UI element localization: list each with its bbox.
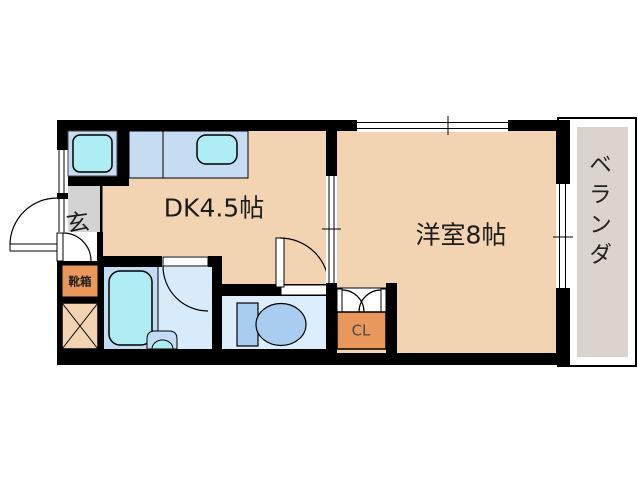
room-label-entrance: 玄 (65, 211, 91, 237)
toilet-bowl (256, 304, 306, 346)
toilet-door-leaf (276, 238, 284, 287)
toilet-door-opening (281, 285, 328, 295)
bathroom (98, 256, 222, 365)
kitchen-wall-band (68, 176, 129, 186)
room-label-western-room: 洋室8帖 (416, 223, 507, 248)
kitchen-wall-stub (117, 131, 129, 179)
window-balcony (553, 184, 573, 288)
floorplan-canvas (0, 0, 638, 480)
bathtub (109, 271, 152, 345)
kitchen-counter (129, 131, 248, 178)
bathroom-door-leaf (163, 257, 208, 266)
closet (337, 283, 397, 353)
hatched-space (62, 303, 98, 349)
room-label-shoe-cabinet: 靴箱 (69, 276, 92, 288)
toilet-tank (237, 303, 258, 346)
room-label-dining-kitchen: DK4.5帖 (164, 196, 264, 221)
stove (68, 131, 117, 176)
room-label-closet: CL (352, 324, 371, 339)
room-label-veranda: ベランダ (586, 152, 609, 272)
floor-plan: DK4.5帖 洋室8帖 玄 靴箱 CL ベランダ (0, 0, 638, 480)
kitchen-sink (197, 135, 237, 164)
